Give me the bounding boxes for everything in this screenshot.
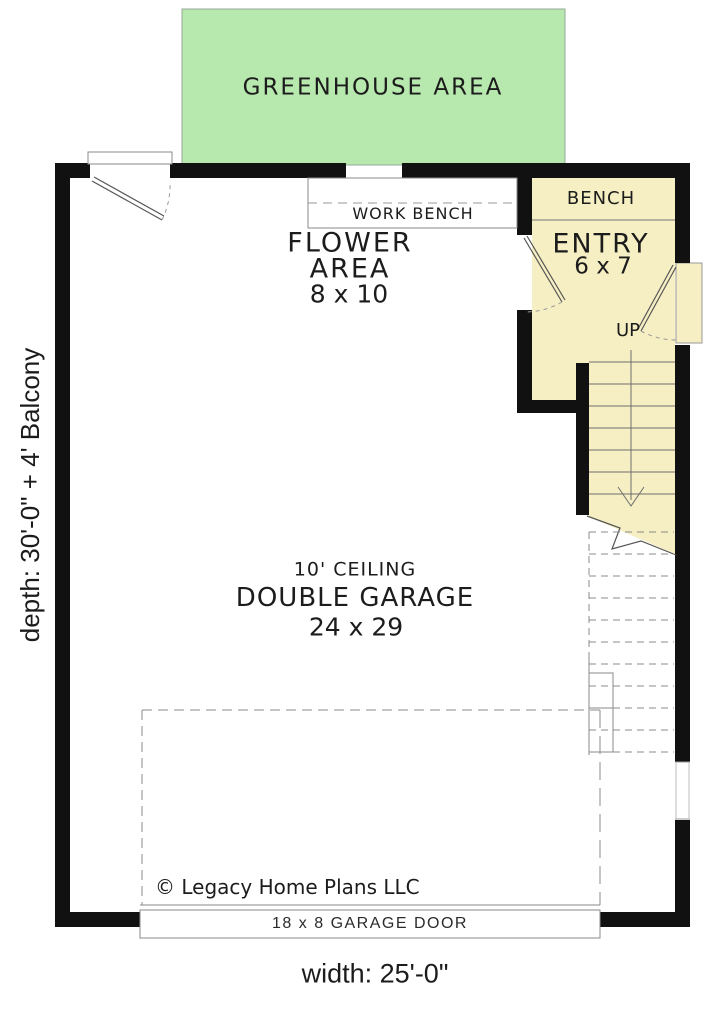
garage-label: DOUBLE GARAGE [236, 585, 474, 611]
entry-bottom-wall [517, 400, 585, 413]
entry-left-wall-upper [517, 178, 532, 235]
entry-left-wall-lower [517, 310, 532, 413]
right-wall-mid [675, 345, 690, 762]
bottom-wall-left [55, 912, 142, 927]
ceiling-label: 10' CEILING [294, 561, 416, 580]
entry-exterior-door-slab [676, 263, 702, 343]
flower-area-label-line2: AREA [310, 256, 391, 283]
depth-dimension-label: depth: 30'-0" + 4' Balcony [17, 348, 43, 643]
door-swing-arc [162, 181, 170, 220]
right-wall-window [675, 762, 690, 819]
floor-plan: GREENHOUSE AREA WORK BENCH FLOWER AREA 8… [0, 0, 718, 1024]
bench-label: BENCH [567, 190, 635, 208]
flower-area-size: 8 x 10 [310, 282, 388, 307]
top-wall-mid [170, 163, 346, 178]
top-wall-right [402, 163, 690, 178]
flower-area-label-line1: FLOWER [287, 230, 412, 257]
right-wall-bottom [675, 820, 690, 927]
garage-door-label: 18 x 8 GARAGE DOOR [272, 916, 468, 932]
stair-area-fill [589, 400, 675, 554]
entry-area-fill [532, 178, 675, 400]
stairs-upper-flight-hidden [589, 532, 674, 758]
floor-plan-drawing [0, 0, 718, 1024]
left-wall [55, 163, 70, 927]
stairwell-wall [576, 363, 589, 515]
width-dimension-label: width: 25'-0" [302, 961, 449, 988]
greenhouse-label: GREENHOUSE AREA [243, 77, 504, 100]
up-label: UP [616, 322, 640, 340]
balcony-door [88, 152, 172, 220]
copyright-label: © Legacy Home Plans LLC [155, 877, 420, 897]
work-bench-label: WORK BENCH [352, 206, 473, 222]
right-wall-top [675, 163, 690, 263]
garage-size: 24 x 29 [309, 615, 403, 640]
entry-size: 6 x 7 [574, 256, 632, 279]
stair-edge-detail [589, 655, 613, 752]
